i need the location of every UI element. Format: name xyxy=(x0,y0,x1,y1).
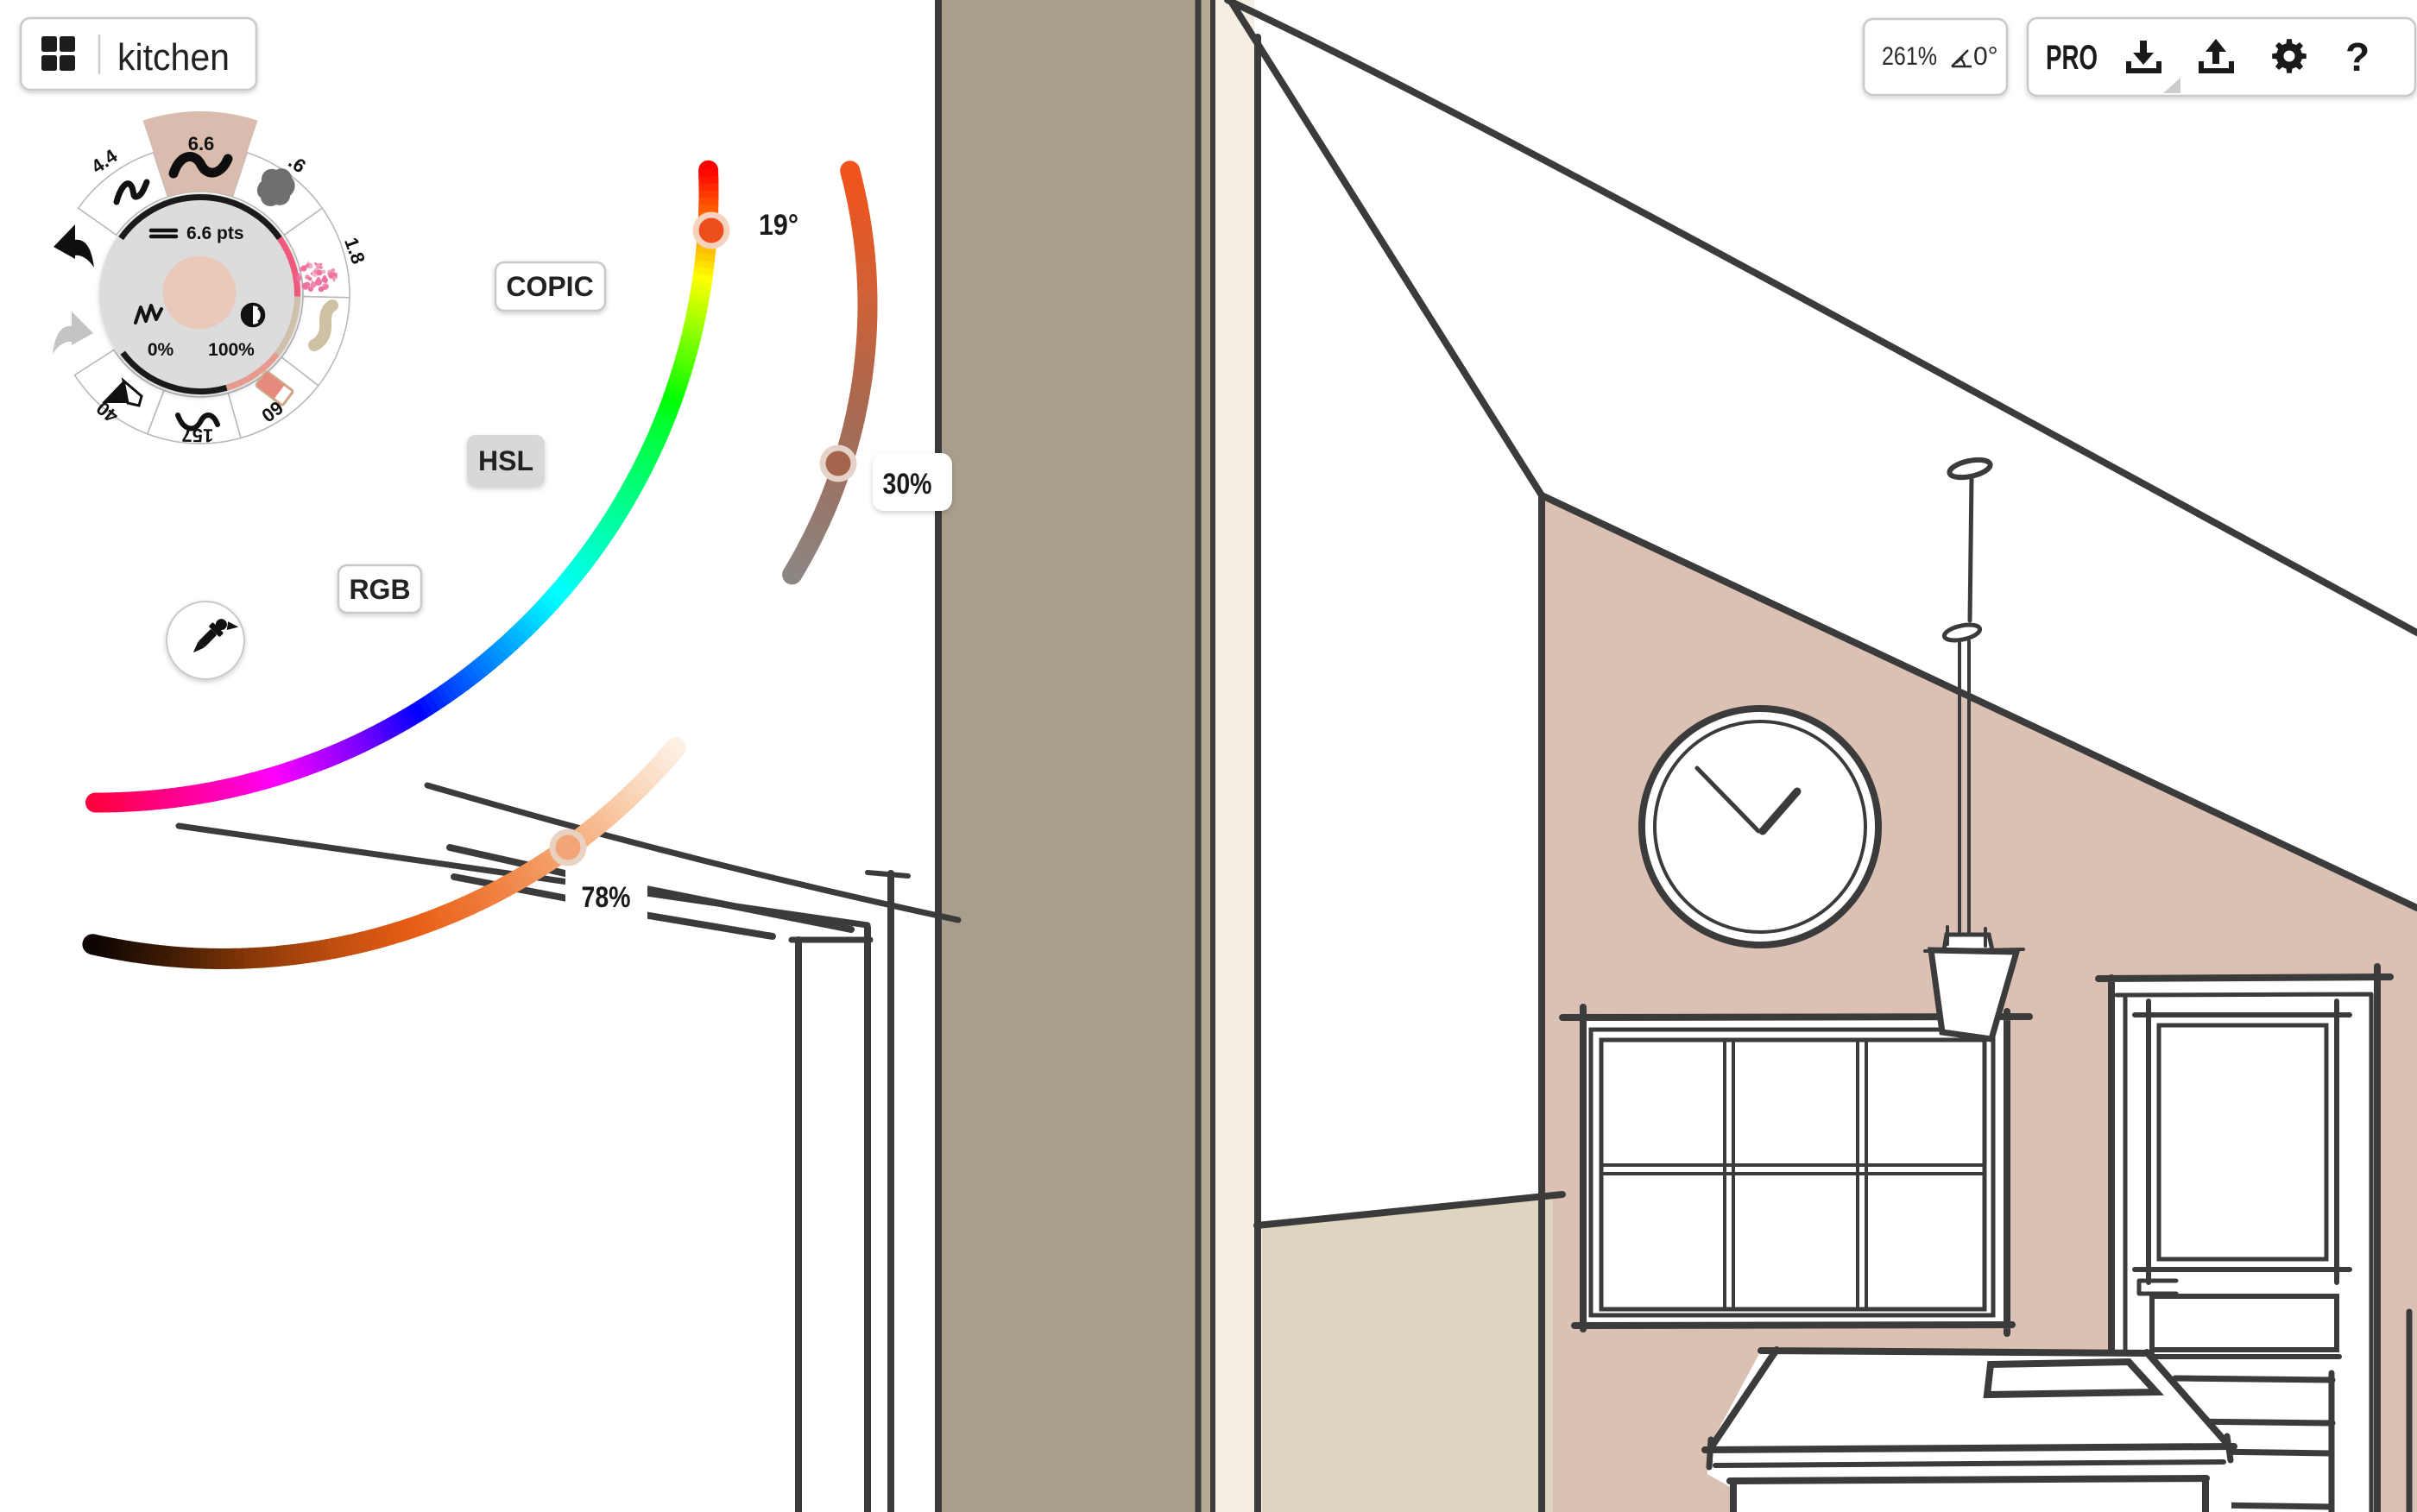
svg-text:78%: 78% xyxy=(582,881,631,914)
svg-text:HSL: HSL xyxy=(478,445,533,476)
svg-text:100%: 100% xyxy=(208,340,255,360)
svg-text:6.6 pts: 6.6 pts xyxy=(186,224,244,243)
svg-text:RGB: RGB xyxy=(349,574,410,605)
svg-text:6.6: 6.6 xyxy=(188,133,215,154)
svg-text:30%: 30% xyxy=(883,468,932,501)
svg-text:?: ? xyxy=(2345,35,2370,79)
svg-text:261%: 261% xyxy=(1882,42,1937,71)
svg-text:19°: 19° xyxy=(759,209,798,242)
svg-text:0%: 0% xyxy=(148,340,174,360)
svg-text:PRO: PRO xyxy=(2046,39,2098,77)
svg-text:157: 157 xyxy=(181,425,213,447)
svg-text:COPIC: COPIC xyxy=(506,271,593,302)
svg-text:0°: 0° xyxy=(1973,42,1998,71)
svg-text:kitchen: kitchen xyxy=(117,36,230,79)
